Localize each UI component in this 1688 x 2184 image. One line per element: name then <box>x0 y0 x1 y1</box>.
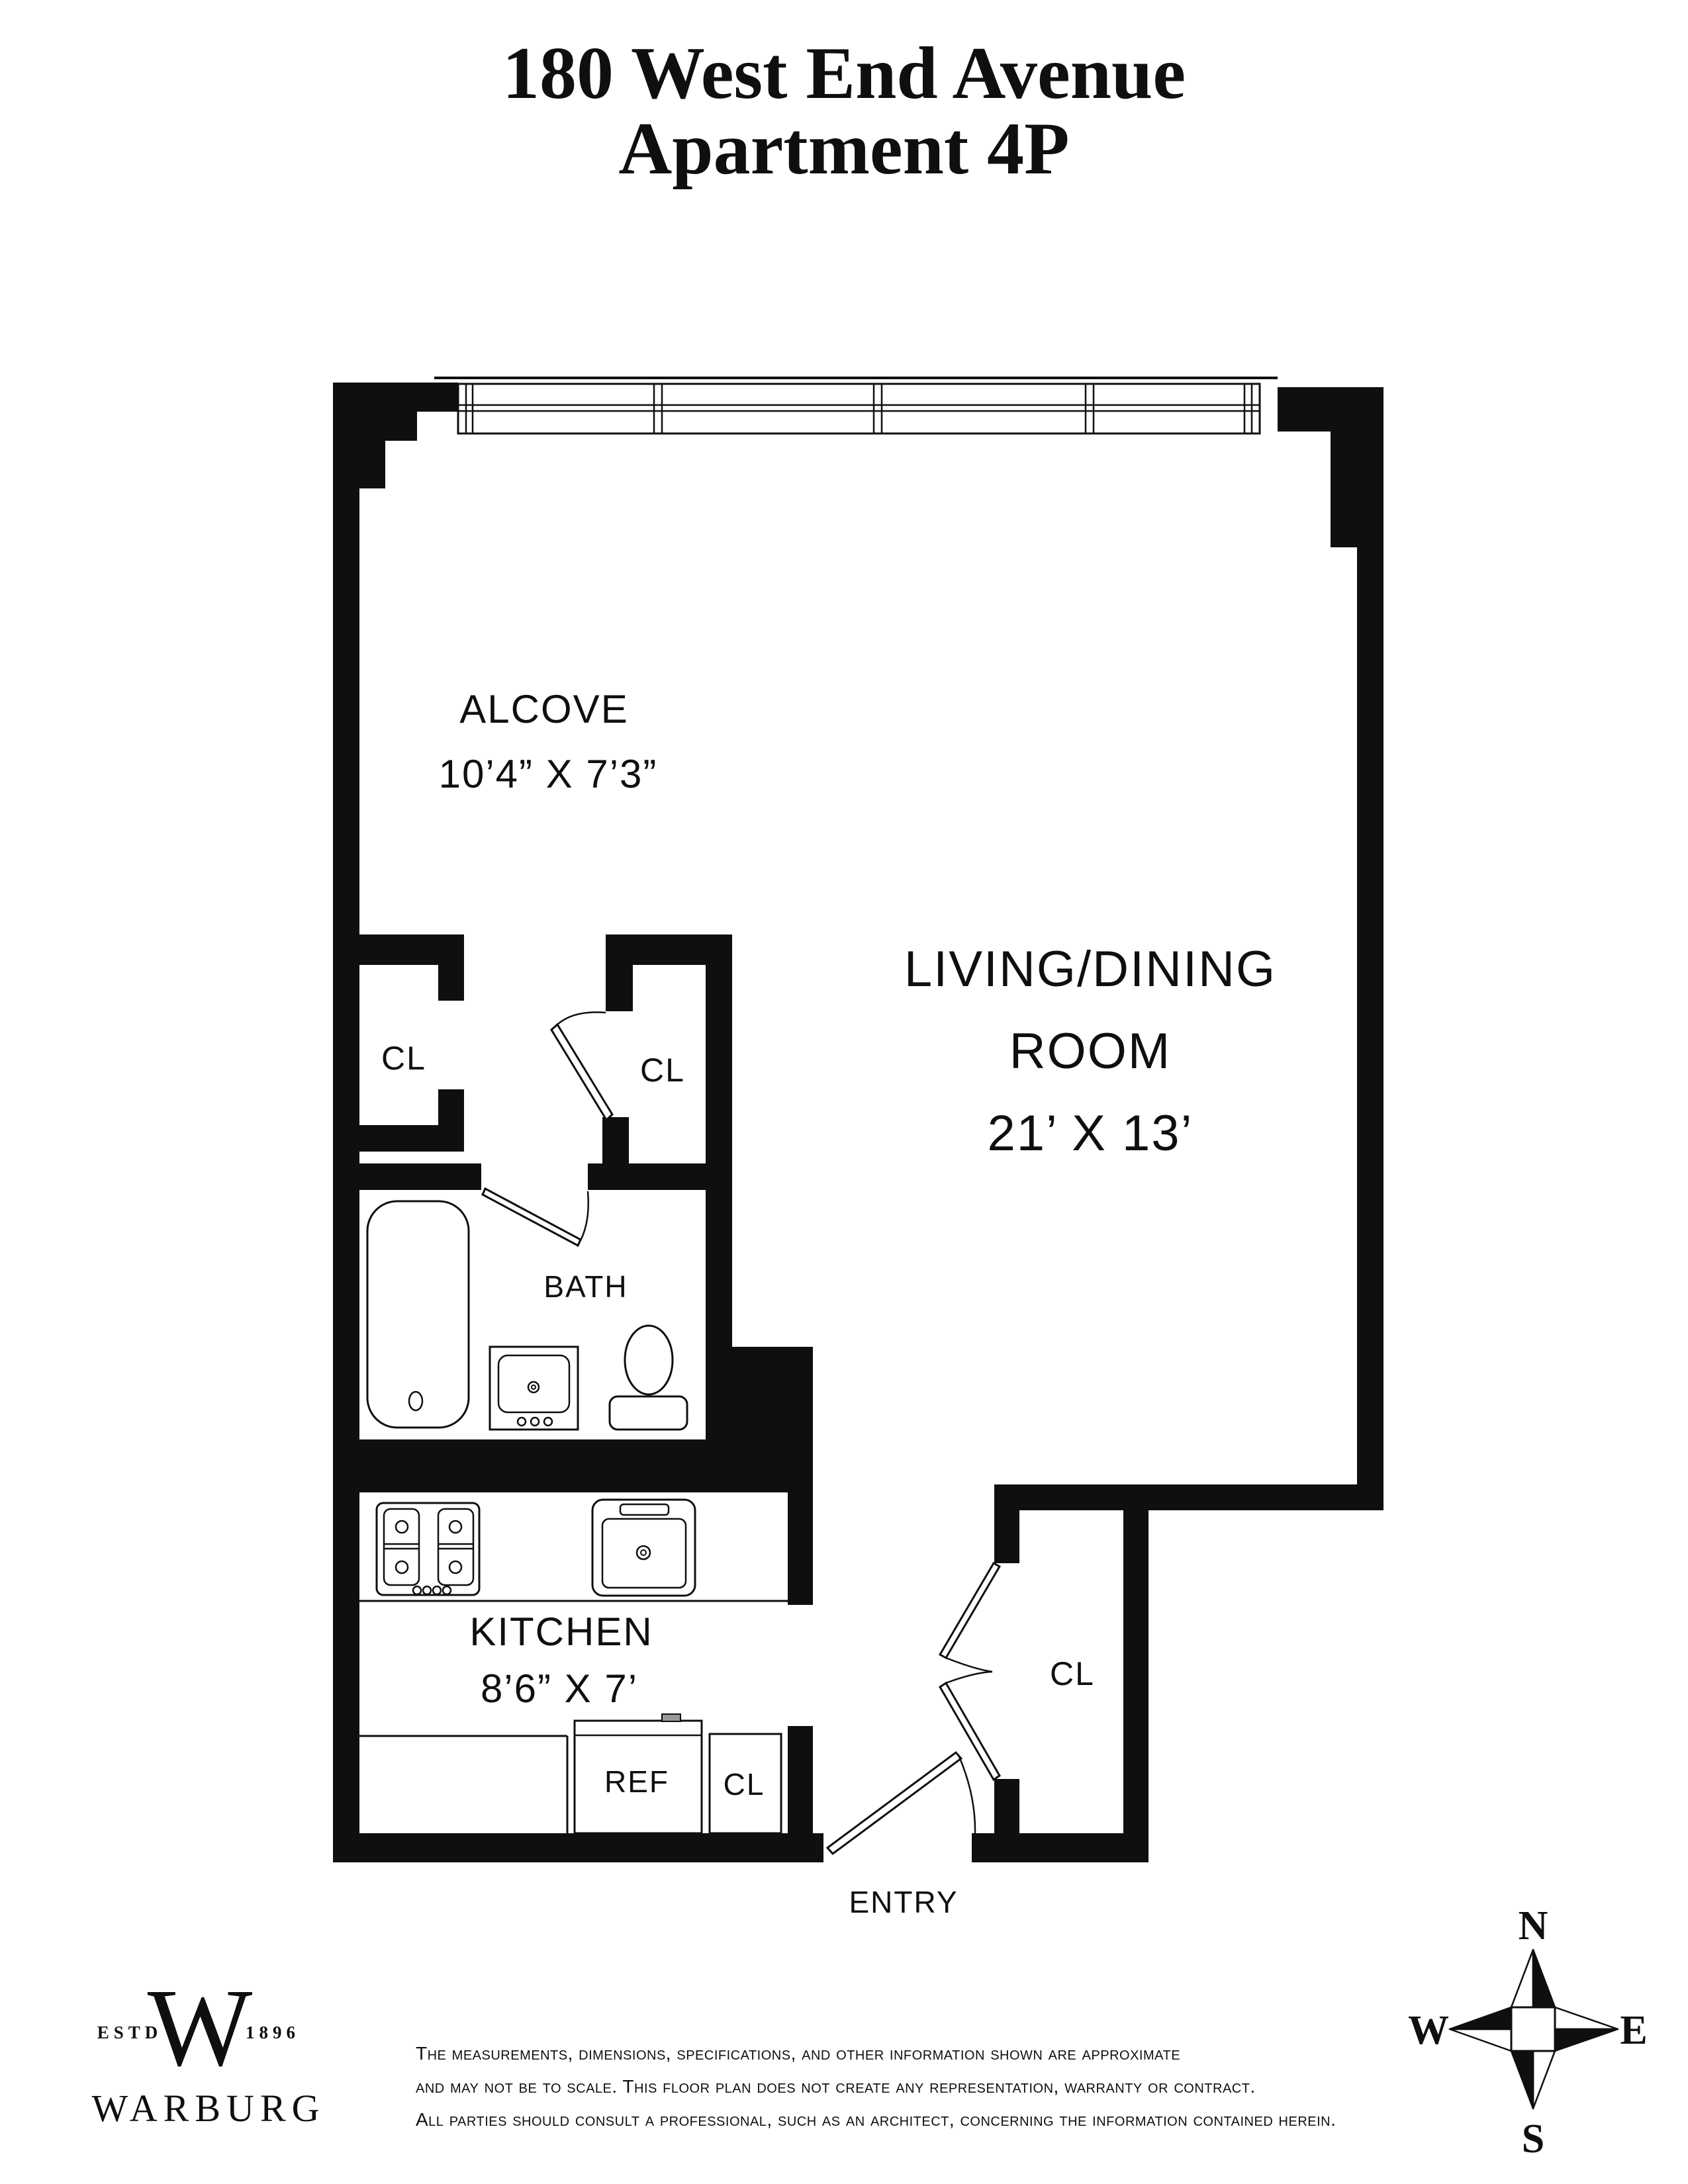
closet-middle-label: CL <box>640 1052 685 1089</box>
disclaimer-line-3: All parties should consult a professiona… <box>416 2109 1336 2130</box>
bathtub-drain <box>409 1392 422 1410</box>
entry-door-leaf <box>827 1752 961 1854</box>
closet-entry-label: CL <box>1050 1655 1095 1692</box>
middle-closet-door-leaf <box>551 1024 612 1120</box>
living-room-label-line1: LIVING/DINING <box>904 941 1276 997</box>
living-room-dims: 21’ X 13’ <box>988 1105 1194 1161</box>
alcove-dims: 10’4” X 7’3” <box>439 752 658 796</box>
stove <box>377 1503 479 1595</box>
kitchen-label: KITCHEN <box>469 1610 653 1654</box>
warburg-estd: ESTD <box>97 2023 163 2042</box>
closet-kitchen-label: CL <box>724 1767 765 1801</box>
compass-south: S <box>1522 2116 1544 2161</box>
bath-label: BATH <box>543 1269 628 1304</box>
entry-door-arc <box>959 1755 975 1833</box>
entry-closet-door-arc-bottom <box>946 1672 992 1683</box>
alcove-label: ALCOVE <box>459 687 628 731</box>
middle-closet-door-arc <box>555 1012 606 1027</box>
warburg-monogram-w: W <box>148 1966 253 2089</box>
compass-east: E <box>1620 2008 1647 2053</box>
toilet-bowl <box>625 1326 673 1394</box>
disclaimer-line-1: The measurements, dimensions, specificat… <box>416 2043 1180 2064</box>
kitchen-dims: 8’6” X 7’ <box>481 1666 638 1711</box>
ref-label: REF <box>604 1764 669 1799</box>
kitchen-sink <box>592 1500 695 1596</box>
entry-label: ENTRY <box>849 1885 958 1919</box>
warburg-year: 1896 <box>246 2023 300 2042</box>
floorplan-page: 180 West End Avenue Apartment 4P <box>0 0 1688 2184</box>
title-line-2: Apartment 4P <box>618 108 1069 190</box>
bath-door-leaf <box>483 1189 581 1246</box>
disclaimer-line-2: and may not be to scale. This floor plan… <box>416 2076 1256 2097</box>
window-frame <box>458 384 1260 433</box>
closet-left-label: CL <box>381 1040 426 1077</box>
window-band <box>434 377 1278 433</box>
title-line-1: 180 West End Avenue <box>502 32 1186 114</box>
warburg-wordmark: WARBURG <box>91 2087 325 2130</box>
entry-closet-door-arc-top <box>946 1658 992 1672</box>
bath-fixtures <box>367 1201 687 1430</box>
living-room-label-line2: ROOM <box>1009 1023 1171 1079</box>
entry-closet-door-leaf-top <box>940 1563 1000 1658</box>
bath-sink-drain-inner <box>532 1385 536 1389</box>
bath-door-arc <box>579 1191 588 1243</box>
floorplan-canvas: 180 West End Avenue Apartment 4P <box>0 0 1688 2184</box>
warburg-logo: W ESTD 1896 WARBURG <box>91 1966 325 2130</box>
page-title: 180 West End Avenue Apartment 4P <box>502 32 1186 190</box>
refrigerator-handle <box>662 1714 680 1721</box>
compass-west: W <box>1408 2008 1449 2053</box>
compass-north: N <box>1519 1903 1548 1948</box>
disclaimer: The measurements, dimensions, specificat… <box>416 2043 1336 2130</box>
compass-rose-icon <box>1450 1950 1618 2109</box>
toilet-tank <box>610 1396 687 1430</box>
window-outer-line <box>434 377 1278 379</box>
